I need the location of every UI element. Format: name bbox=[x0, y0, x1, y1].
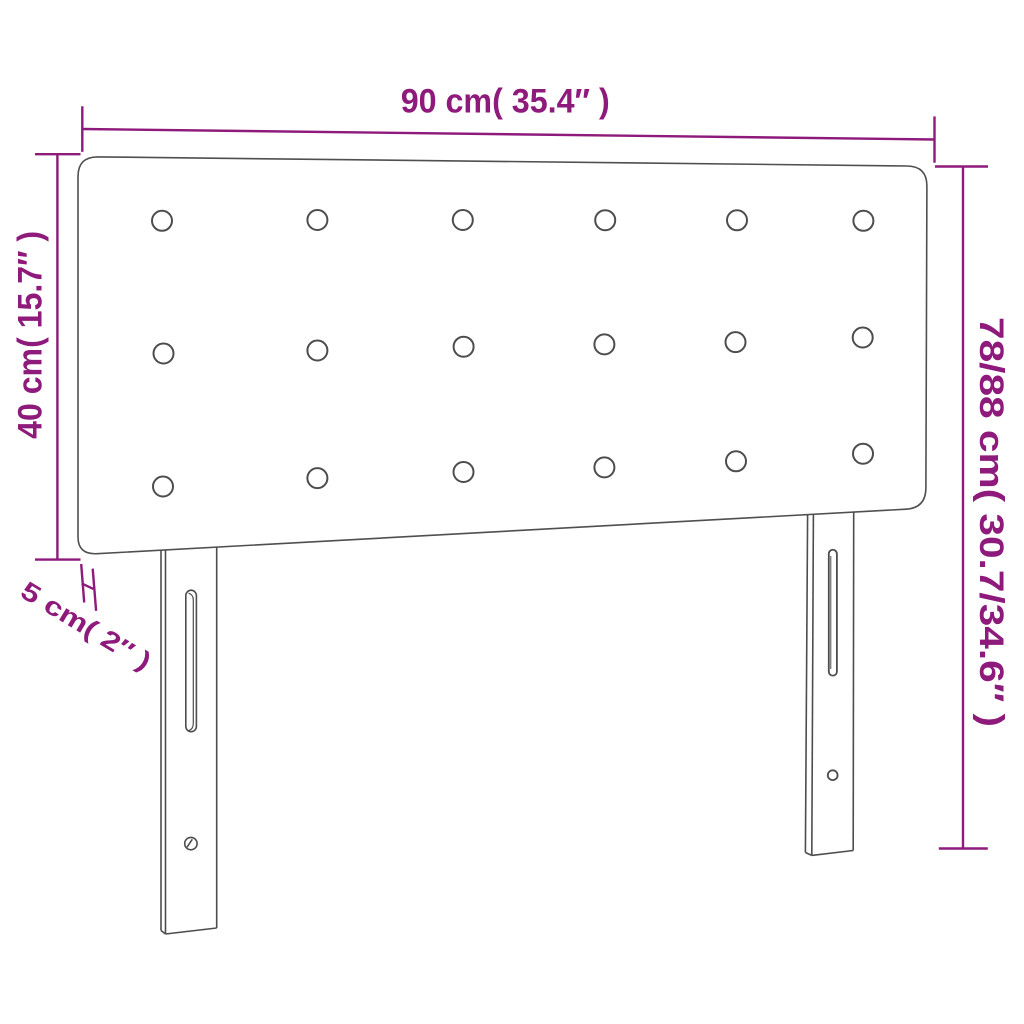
svg-text:5 cm( 2″ ): 5 cm( 2″ ) bbox=[16, 575, 157, 676]
svg-text:40 cm( 15.7″ ): 40 cm( 15.7″ ) bbox=[11, 231, 49, 439]
svg-text:78/88 cm( 30.7/34.6″ ): 78/88 cm( 30.7/34.6″ ) bbox=[972, 317, 1010, 727]
svg-text:90 cm( 35.4″ ): 90 cm( 35.4″ ) bbox=[401, 82, 610, 120]
